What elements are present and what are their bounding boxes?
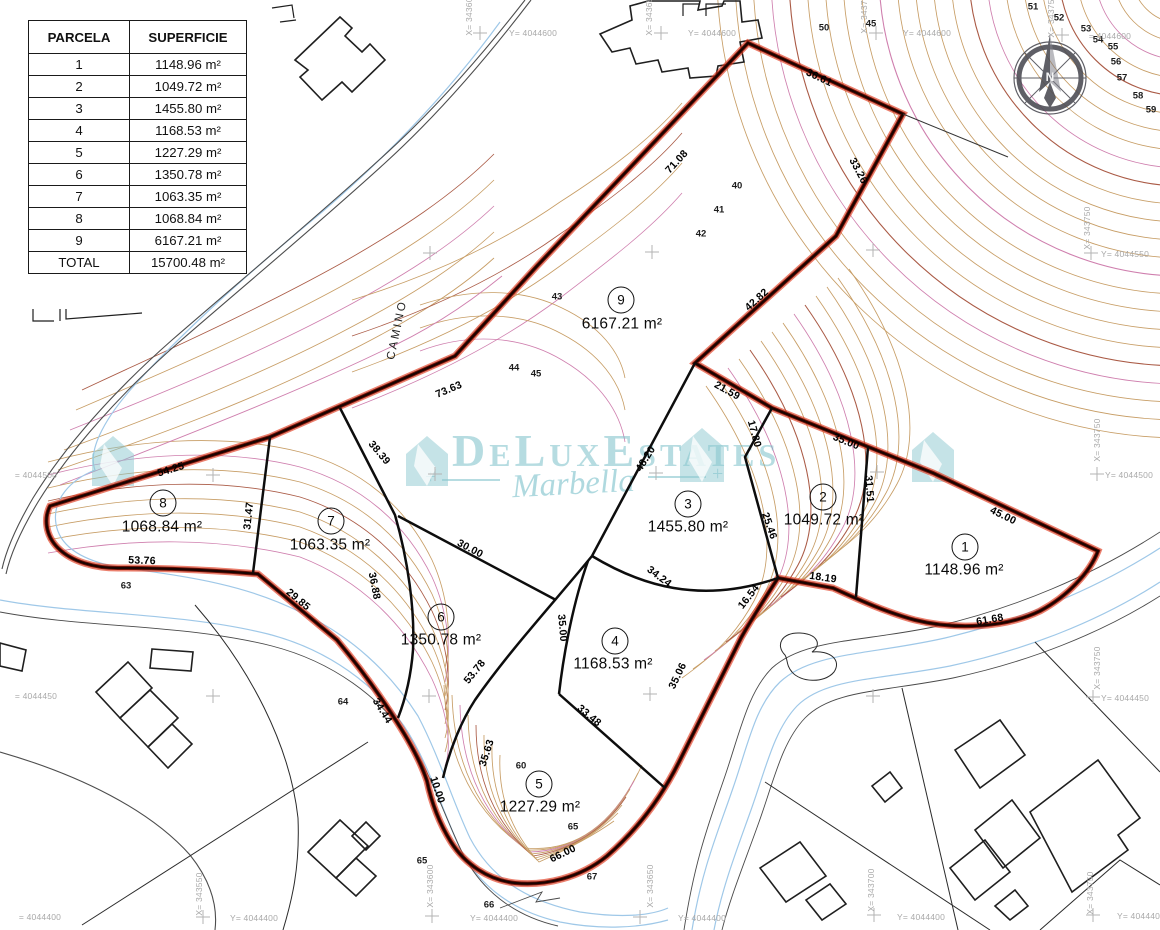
contour-elevation-label: 41: [714, 205, 725, 215]
area-table-row: TOTAL15700.48 m²: [29, 252, 247, 274]
edge-dimension-label: 54.25: [156, 461, 185, 479]
parcel-area-label: 1455.80 m²: [648, 519, 728, 535]
parcel-number-badge: 6: [428, 604, 455, 631]
edge-dimension-label: 18.19: [809, 571, 838, 585]
col-parcela: PARCELA: [29, 21, 130, 54]
grid-coordinate-label: Y= 4044400: [1117, 912, 1160, 921]
contour-elevation-label: 64: [338, 697, 349, 707]
parcel-number-badge: 8: [150, 490, 177, 517]
area-table-cell: 1063.35 m²: [130, 186, 247, 208]
edge-dimension-label: 34.44: [370, 697, 393, 726]
area-table-cell: 1049.72 m²: [130, 76, 247, 98]
area-table-cell: 6167.21 m²: [130, 230, 247, 252]
area-table-cell: 1350.78 m²: [130, 164, 247, 186]
area-table-cell: 2: [29, 76, 130, 98]
area-table-cell: 15700.48 m²: [130, 252, 247, 274]
contour-elevation-label: 55: [1108, 42, 1119, 52]
area-table-cell: 4: [29, 120, 130, 142]
edge-dimension-label: 33.26: [847, 156, 869, 185]
edge-dimension-label: 35.63: [478, 738, 496, 767]
grid-coordinate-label: Y= 4044600: [688, 29, 736, 38]
grid-coordinate-label: X= 343650: [645, 0, 654, 36]
contour-elevation-label: 59: [1146, 105, 1157, 115]
parcel-area-label: 6167.21 m²: [582, 316, 662, 332]
contour-elevation-label: 56: [1111, 57, 1122, 67]
edge-dimension-label: 35.00: [831, 432, 860, 452]
grid-coordinate-label: Y= 4044400: [230, 914, 278, 923]
area-table-cell: 9: [29, 230, 130, 252]
area-table-cell: 1227.29 m²: [130, 142, 247, 164]
edge-dimension-label: 31.51: [863, 475, 875, 503]
parcel-number-badge: 5: [526, 771, 553, 798]
area-table-row: 21049.72 m²: [29, 76, 247, 98]
area-table-cell: TOTAL: [29, 252, 130, 274]
grid-coordinate-label: X= 343650: [646, 864, 655, 907]
contour-elevation-label: 57: [1117, 73, 1128, 83]
area-table: PARCELA SUPERFICIE 11148.96 m²21049.72 m…: [28, 20, 247, 274]
area-table-row: 51227.29 m²: [29, 142, 247, 164]
area-table-header-row: PARCELA SUPERFICIE: [29, 21, 247, 54]
grid-coordinate-label: X= 343700: [860, 0, 869, 34]
col-superficie: SUPERFICIE: [130, 21, 247, 54]
edge-dimension-label: 35.00: [556, 614, 569, 642]
edge-dimension-label: 36.88: [366, 571, 382, 600]
parcel-area-label: 1049.72 m²: [784, 512, 864, 528]
area-table-row: 81068.84 m²: [29, 208, 247, 230]
parcel-area-label: 1168.53 m²: [573, 656, 652, 672]
grid-coordinate-label: X= 343600: [426, 864, 435, 907]
parcel-area-label: 1227.29 m²: [500, 799, 580, 815]
area-table-cell: 1068.84 m²: [130, 208, 247, 230]
grid-coordinate-label: Y= 4044600: [903, 29, 951, 38]
contour-elevation-label: 45: [531, 369, 542, 379]
edge-dimension-label: 36.61: [804, 67, 833, 88]
contour-elevation-label: 66: [484, 900, 495, 910]
edge-dimension-label: 33.48: [575, 703, 603, 729]
parcel-number-badge: 1: [952, 534, 979, 561]
area-table-row: 61350.78 m²: [29, 164, 247, 186]
area-table-cell: 1: [29, 54, 130, 76]
area-table-row: 41168.53 m²: [29, 120, 247, 142]
contour-elevation-label: 67: [587, 872, 598, 882]
contour-elevation-label: 58: [1133, 91, 1144, 101]
contour-elevation-label: 65: [568, 822, 579, 832]
edge-dimension-label: 61.68: [976, 612, 1005, 627]
contour-elevation-label: 51: [1028, 2, 1039, 12]
camino-road-label: CAMINO: [386, 299, 410, 361]
parcel-number-badge: 3: [675, 491, 702, 518]
edge-dimension-label: 10.00: [428, 775, 446, 804]
grid-coordinate-label: X= 343750: [1093, 418, 1102, 461]
edge-dimension-label: 53.76: [128, 555, 156, 566]
grid-coordinate-label: Y= 4044400: [470, 914, 518, 923]
edge-dimension-label: 42.82: [743, 287, 770, 313]
area-table-cell: 7: [29, 186, 130, 208]
contour-elevation-label: 60: [516, 761, 527, 771]
parcel-area-label: 1350.78 m²: [401, 632, 481, 648]
contour-elevation-label: 50: [819, 23, 830, 33]
edge-dimension-label: 35.06: [667, 661, 689, 690]
compass-north-label: N: [1046, 70, 1055, 84]
parcel-area-label: 1063.35 m²: [290, 537, 370, 553]
edge-dimension-label: 29.85: [284, 587, 312, 613]
area-table-row: 71063.35 m²: [29, 186, 247, 208]
grid-coordinate-label: Y= 4044600: [509, 29, 557, 38]
edge-dimension-label: 48.20: [634, 445, 657, 474]
grid-coordinate-label: X= 343750: [1083, 206, 1092, 249]
parcel-area-label: 1148.96 m²: [924, 562, 1003, 578]
edge-dimension-label: 16.54: [736, 583, 761, 611]
area-table-cell: 1455.80 m²: [130, 98, 247, 120]
edge-dimension-label: 73.63: [434, 380, 463, 400]
parcel-number-badge: 2: [810, 484, 837, 511]
edge-dimension-label: 45.00: [988, 505, 1017, 527]
edge-dimension-label: 53.78: [462, 658, 487, 686]
area-table-row: 96167.21 m²: [29, 230, 247, 252]
contour-elevation-label: 44: [509, 363, 520, 373]
area-table-cell: 1168.53 m²: [130, 120, 247, 142]
grid-coordinate-label: = 4044600: [1089, 32, 1131, 41]
parcel-number-badge: 4: [602, 628, 629, 655]
cadastral-site-plan: DeLuxEstates Marbella + +: [0, 0, 1160, 930]
contour-elevation-label: 42: [696, 229, 707, 239]
contour-elevation-label: 40: [732, 181, 743, 191]
edge-dimension-label: 21.59: [712, 380, 741, 403]
grid-coordinate-label: X= 343600: [465, 0, 474, 36]
edge-dimension-label: 66.00: [548, 843, 577, 865]
area-table-cell: 6: [29, 164, 130, 186]
compass-rose: N: [1008, 30, 1092, 122]
area-table-cell: 3: [29, 98, 130, 120]
edge-dimension-label: 31.47: [242, 502, 255, 530]
grid-coordinate-label: Y= 4044400: [897, 913, 945, 922]
area-table-row: 11148.96 m²: [29, 54, 247, 76]
area-table-cell: 1148.96 m²: [130, 54, 247, 76]
parcel-area-label: 1068.84 m²: [122, 519, 202, 535]
grid-coordinate-label: Y= 4044450: [1101, 694, 1149, 703]
edge-dimension-label: 17.80: [745, 419, 762, 448]
grid-coordinate-label: = 4044400: [19, 913, 61, 922]
grid-coordinate-label: = 4044500: [15, 471, 57, 480]
grid-coordinate-label: X= 343550: [195, 872, 204, 915]
edge-dimension-label: 71.08: [664, 148, 690, 175]
area-table-cell: 8: [29, 208, 130, 230]
area-table-cell: 5: [29, 142, 130, 164]
edge-dimension-label: 25.46: [760, 511, 779, 540]
grid-coordinate-label: Y= 4044500: [1105, 471, 1153, 480]
grid-coordinate-label: Y= 4044400: [678, 914, 726, 923]
edge-dimension-label: 34.24: [645, 565, 673, 590]
grid-coordinate-label: X= 343700: [867, 868, 876, 911]
area-table-row: 31455.80 m²: [29, 98, 247, 120]
grid-coordinate-label: Y= 4044550: [1101, 250, 1149, 259]
edge-dimension-label: 30.00: [455, 538, 484, 560]
grid-coordinate-label: X= 343750: [1093, 646, 1102, 689]
grid-coordinate-label: X= 343750: [1086, 871, 1095, 914]
edge-dimension-label: 38.39: [366, 439, 392, 467]
contour-elevation-label: 63: [121, 581, 132, 591]
contour-elevation-label: 43: [552, 292, 563, 302]
grid-coordinate-label: = 4044450: [15, 692, 57, 701]
parcel-number-badge: 9: [608, 287, 635, 314]
parcel-number-badge: 7: [318, 508, 345, 535]
